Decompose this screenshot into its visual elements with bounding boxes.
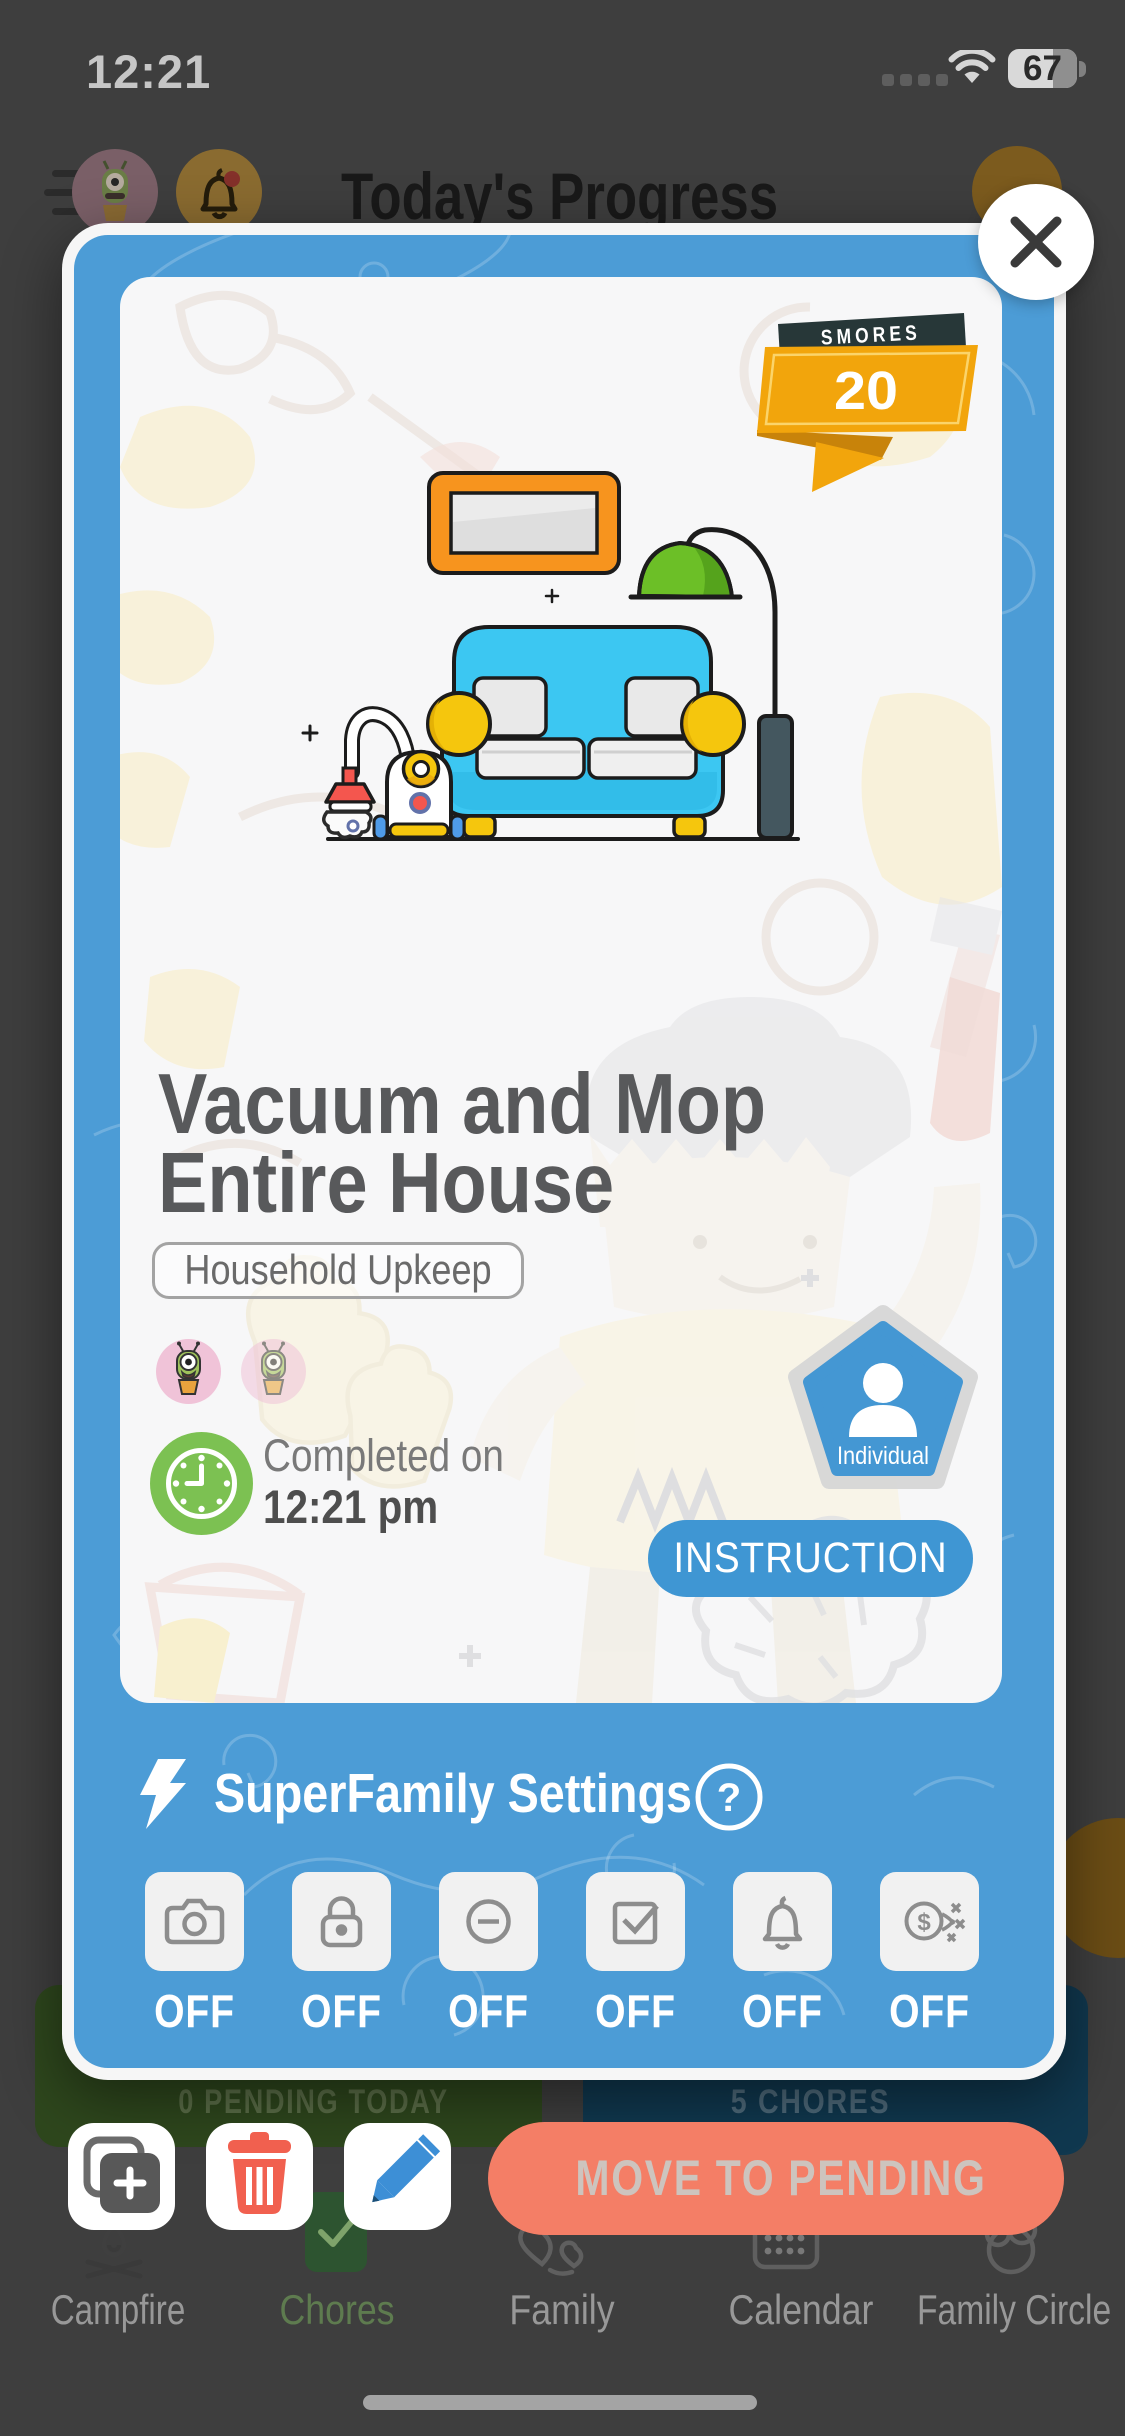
svg-text:?: ? (717, 1776, 741, 1820)
svg-text:Individual: Individual (837, 1442, 929, 1470)
svg-text:20: 20 (834, 361, 898, 421)
svg-text:$: $ (917, 1909, 931, 1936)
